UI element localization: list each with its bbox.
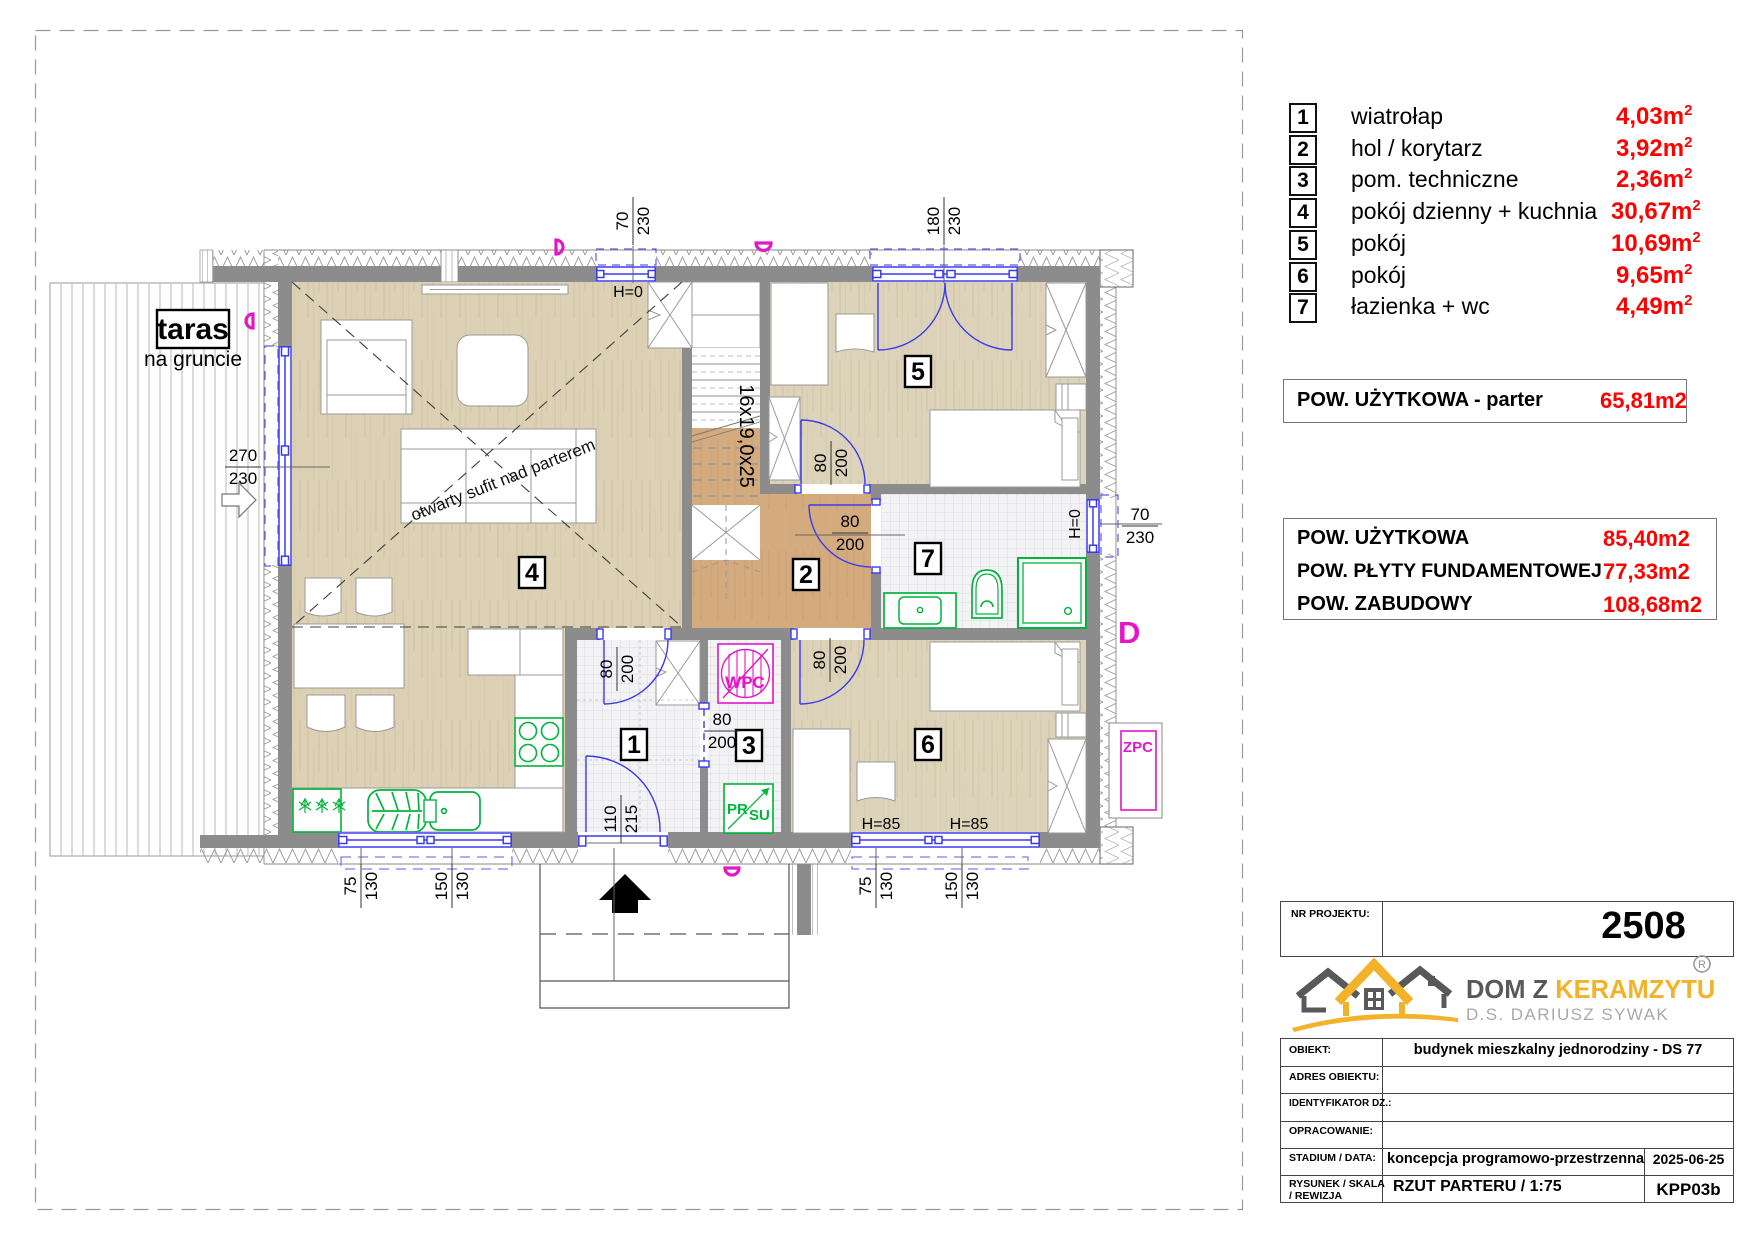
svg-text:H=0: H=0 — [1067, 509, 1084, 539]
svg-text:R: R — [1698, 959, 1706, 971]
svg-text:SU: SU — [749, 807, 770, 824]
svg-text:na gruncie: na gruncie — [144, 348, 242, 371]
svg-text:80: 80 — [811, 454, 830, 473]
svg-text:3: 3 — [742, 732, 756, 760]
svg-text:200: 200 — [832, 449, 851, 477]
svg-text:6: 6 — [921, 731, 935, 759]
svg-text:80: 80 — [597, 660, 616, 679]
svg-text:230: 230 — [634, 207, 653, 235]
svg-text:80: 80 — [713, 710, 732, 729]
svg-text:230: 230 — [229, 469, 257, 488]
svg-text:215: 215 — [622, 805, 641, 833]
svg-text:270: 270 — [229, 446, 257, 465]
svg-text:5: 5 — [911, 358, 925, 386]
svg-text:D: D — [1118, 615, 1140, 650]
svg-text:200: 200 — [836, 535, 864, 554]
svg-text:16x19,0x25: 16x19,0x25 — [735, 384, 757, 487]
svg-text:ZPC: ZPC — [1123, 739, 1153, 756]
svg-text:4: 4 — [525, 559, 539, 587]
svg-text:200: 200 — [618, 655, 637, 683]
svg-text:200: 200 — [831, 646, 850, 674]
svg-text:230: 230 — [1126, 528, 1154, 547]
svg-text:70: 70 — [613, 212, 632, 231]
svg-text:130: 130 — [963, 872, 982, 900]
svg-text:PR: PR — [727, 801, 748, 818]
svg-text:80: 80 — [841, 512, 860, 531]
svg-text:taras: taras — [157, 313, 229, 346]
svg-text:2: 2 — [799, 561, 813, 589]
svg-text:230: 230 — [945, 207, 964, 235]
svg-text:1: 1 — [627, 731, 641, 759]
svg-text:130: 130 — [362, 872, 381, 900]
svg-text:130: 130 — [877, 872, 896, 900]
svg-text:80: 80 — [810, 651, 829, 670]
svg-text:DOM Z KERAMZYTU: DOM Z KERAMZYTU — [1466, 976, 1715, 1004]
svg-text:H=85: H=85 — [862, 816, 901, 833]
svg-text:75: 75 — [856, 877, 875, 896]
svg-text:D.S. DARIUSZ SYWAK: D.S. DARIUSZ SYWAK — [1466, 1005, 1669, 1024]
svg-text:75: 75 — [341, 877, 360, 896]
svg-text:H=85: H=85 — [950, 816, 989, 833]
svg-text:130: 130 — [453, 872, 472, 900]
svg-text:180: 180 — [924, 207, 943, 235]
svg-text:150: 150 — [942, 872, 961, 900]
svg-text:150: 150 — [432, 872, 451, 900]
svg-text:H=0: H=0 — [613, 284, 643, 301]
svg-text:200: 200 — [708, 733, 736, 752]
svg-text:110: 110 — [601, 805, 620, 832]
svg-text:7: 7 — [921, 545, 935, 573]
svg-text:70: 70 — [1131, 505, 1150, 524]
svg-text:WPC: WPC — [725, 673, 765, 692]
